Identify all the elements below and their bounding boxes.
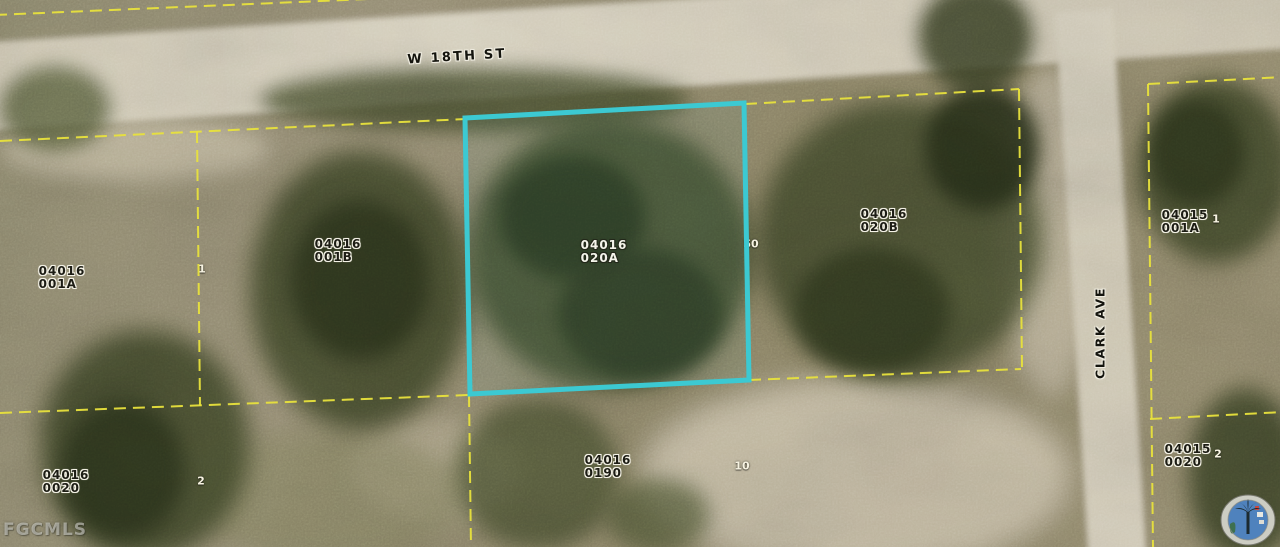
parcel-apn-line2: 001A (1162, 222, 1200, 235)
parcel-label-04016-0020: 04016 0020 (43, 469, 90, 495)
parcel-apn-line2: 0020 (43, 482, 80, 495)
parcel-label-04016-001B: 04016 001B (315, 238, 362, 264)
parcel-apn-line2: 001A (39, 278, 77, 291)
parcel-apn-line2: 001B (315, 251, 353, 264)
parcel-apn-line2: 020B (861, 221, 899, 234)
parcel-label-04016-020A-highlighted: 04016 020A (581, 239, 628, 265)
parcel-apn-line2: 020A (581, 252, 619, 265)
mls-seal-logo-icon (1219, 494, 1277, 546)
street-label-clark-ave: CLARK AVE (1093, 287, 1108, 379)
parcel-label-04015-001A: 04015 001A (1162, 209, 1209, 235)
parcel-label-04016-0190: 04016 0190 (585, 454, 632, 480)
parcel-label-04015-0020: 04015 0020 (1165, 443, 1212, 469)
parcel-apn-line2: 0020 (1165, 456, 1202, 469)
parcel-label-04016-020B: 04016 020B (861, 208, 908, 234)
parcel-boundary-overlay (0, 0, 1280, 547)
parcel-apn-line2: 0190 (585, 467, 622, 480)
aerial-parcel-map: 1 2 50 10 1 2 W 18TH ST CLARK AVE 04016 … (0, 0, 1280, 547)
fgcmls-watermark: FGCMLS (3, 520, 87, 540)
parcel-label-04016-001A: 04016 001A (39, 265, 86, 291)
